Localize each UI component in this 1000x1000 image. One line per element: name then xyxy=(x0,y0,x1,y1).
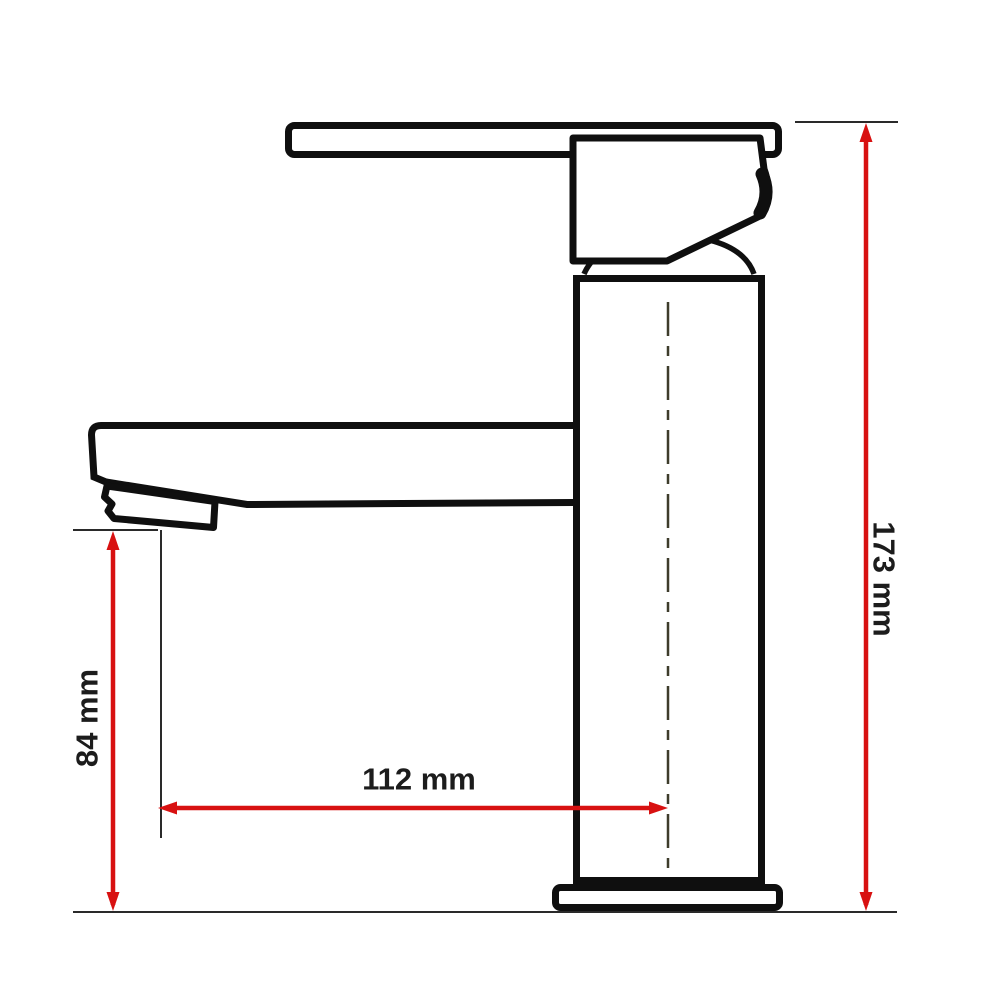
arrowhead-up-84 xyxy=(107,531,120,550)
faucet-base-flange xyxy=(556,888,780,908)
arrowhead-up-173 xyxy=(860,123,873,142)
faucet-dimension-diagram: 173 mm 84 mm 112 mm xyxy=(0,0,1000,1000)
dimension-label-spout-height: 84 mm xyxy=(70,669,105,767)
dimension-spout-height: 84 mm xyxy=(70,531,120,911)
arrowhead-down-84 xyxy=(107,892,120,911)
handle-housing-end-curl xyxy=(760,174,766,213)
dimension-label-total-height: 173 mm xyxy=(867,521,902,636)
arrowhead-down-173 xyxy=(860,892,873,911)
faucet-technical-drawing: 173 mm 84 mm 112 mm xyxy=(0,0,1000,1000)
dimension-label-spout-reach: 112 mm xyxy=(362,762,476,797)
handle-housing xyxy=(573,138,768,261)
dimension-total-height: 173 mm xyxy=(860,123,902,911)
